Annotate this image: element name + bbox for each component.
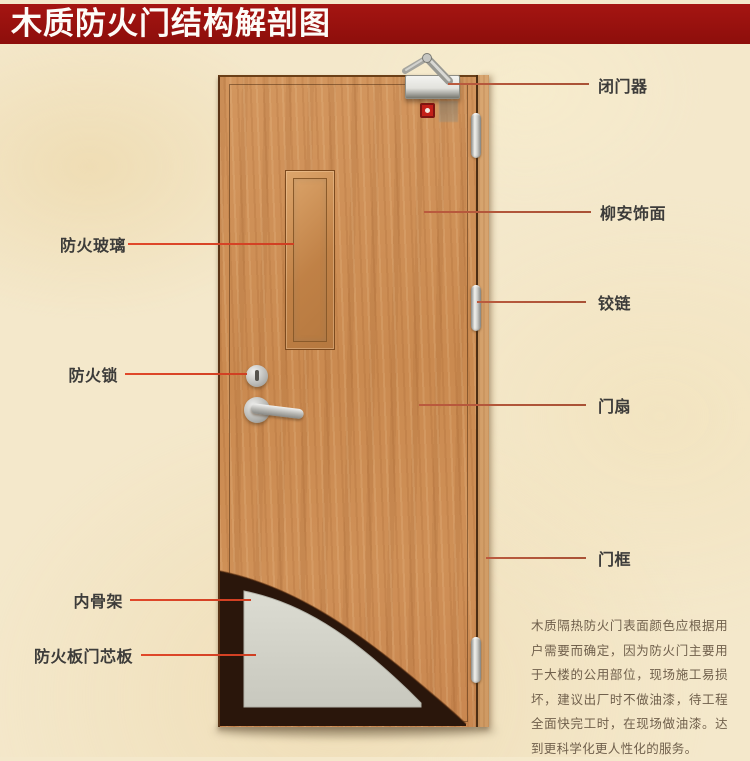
label-fire-lock: 防火锁 <box>68 362 118 386</box>
annotation-line-fire-glass <box>128 243 294 245</box>
door-closer-body <box>405 75 460 99</box>
fire-indicator-badge <box>420 103 435 118</box>
label-door-leaf: 门扇 <box>598 393 631 417</box>
annotation-line-door-frame <box>486 557 586 559</box>
glass-pane <box>293 178 327 342</box>
annotation-line-core-panel <box>141 654 256 656</box>
fire-lock-cylinder <box>246 365 268 387</box>
door-leaf <box>218 75 476 727</box>
title-banner: 木质防火门结构解剖图 <box>0 4 750 44</box>
page-title: 木质防火门结构解剖图 <box>0 4 331 44</box>
label-hinge: 铰链 <box>598 290 631 314</box>
hinge-top <box>471 113 481 158</box>
annotation-line-door-leaf <box>419 404 586 406</box>
annotation-line-inner-frame <box>130 599 251 601</box>
closer-shadow-patch <box>439 101 458 122</box>
door-frame-jamb <box>476 75 489 727</box>
label-inner-frame: 内骨架 <box>73 588 123 612</box>
annotation-line-door-closer <box>448 83 589 85</box>
label-veneer: 柳安饰面 <box>600 200 666 224</box>
hinge-bottom <box>471 637 481 683</box>
label-door-frame: 门框 <box>598 546 631 570</box>
hinge-middle <box>471 285 481 331</box>
annotation-line-veneer <box>424 211 591 213</box>
label-fire-glass: 防火玻璃 <box>60 232 126 256</box>
label-door-closer: 闭门器 <box>598 73 648 97</box>
label-core-panel: 防火板门芯板 <box>34 643 133 667</box>
annotation-line-hinge <box>477 301 586 303</box>
description-text: 木质隔热防火门表面颜色应根据用户需要而确定，因为防火门主要用于大楼的公用部位，现… <box>531 614 728 761</box>
annotation-line-fire-lock <box>125 373 247 375</box>
fire-glass-window <box>285 170 335 350</box>
